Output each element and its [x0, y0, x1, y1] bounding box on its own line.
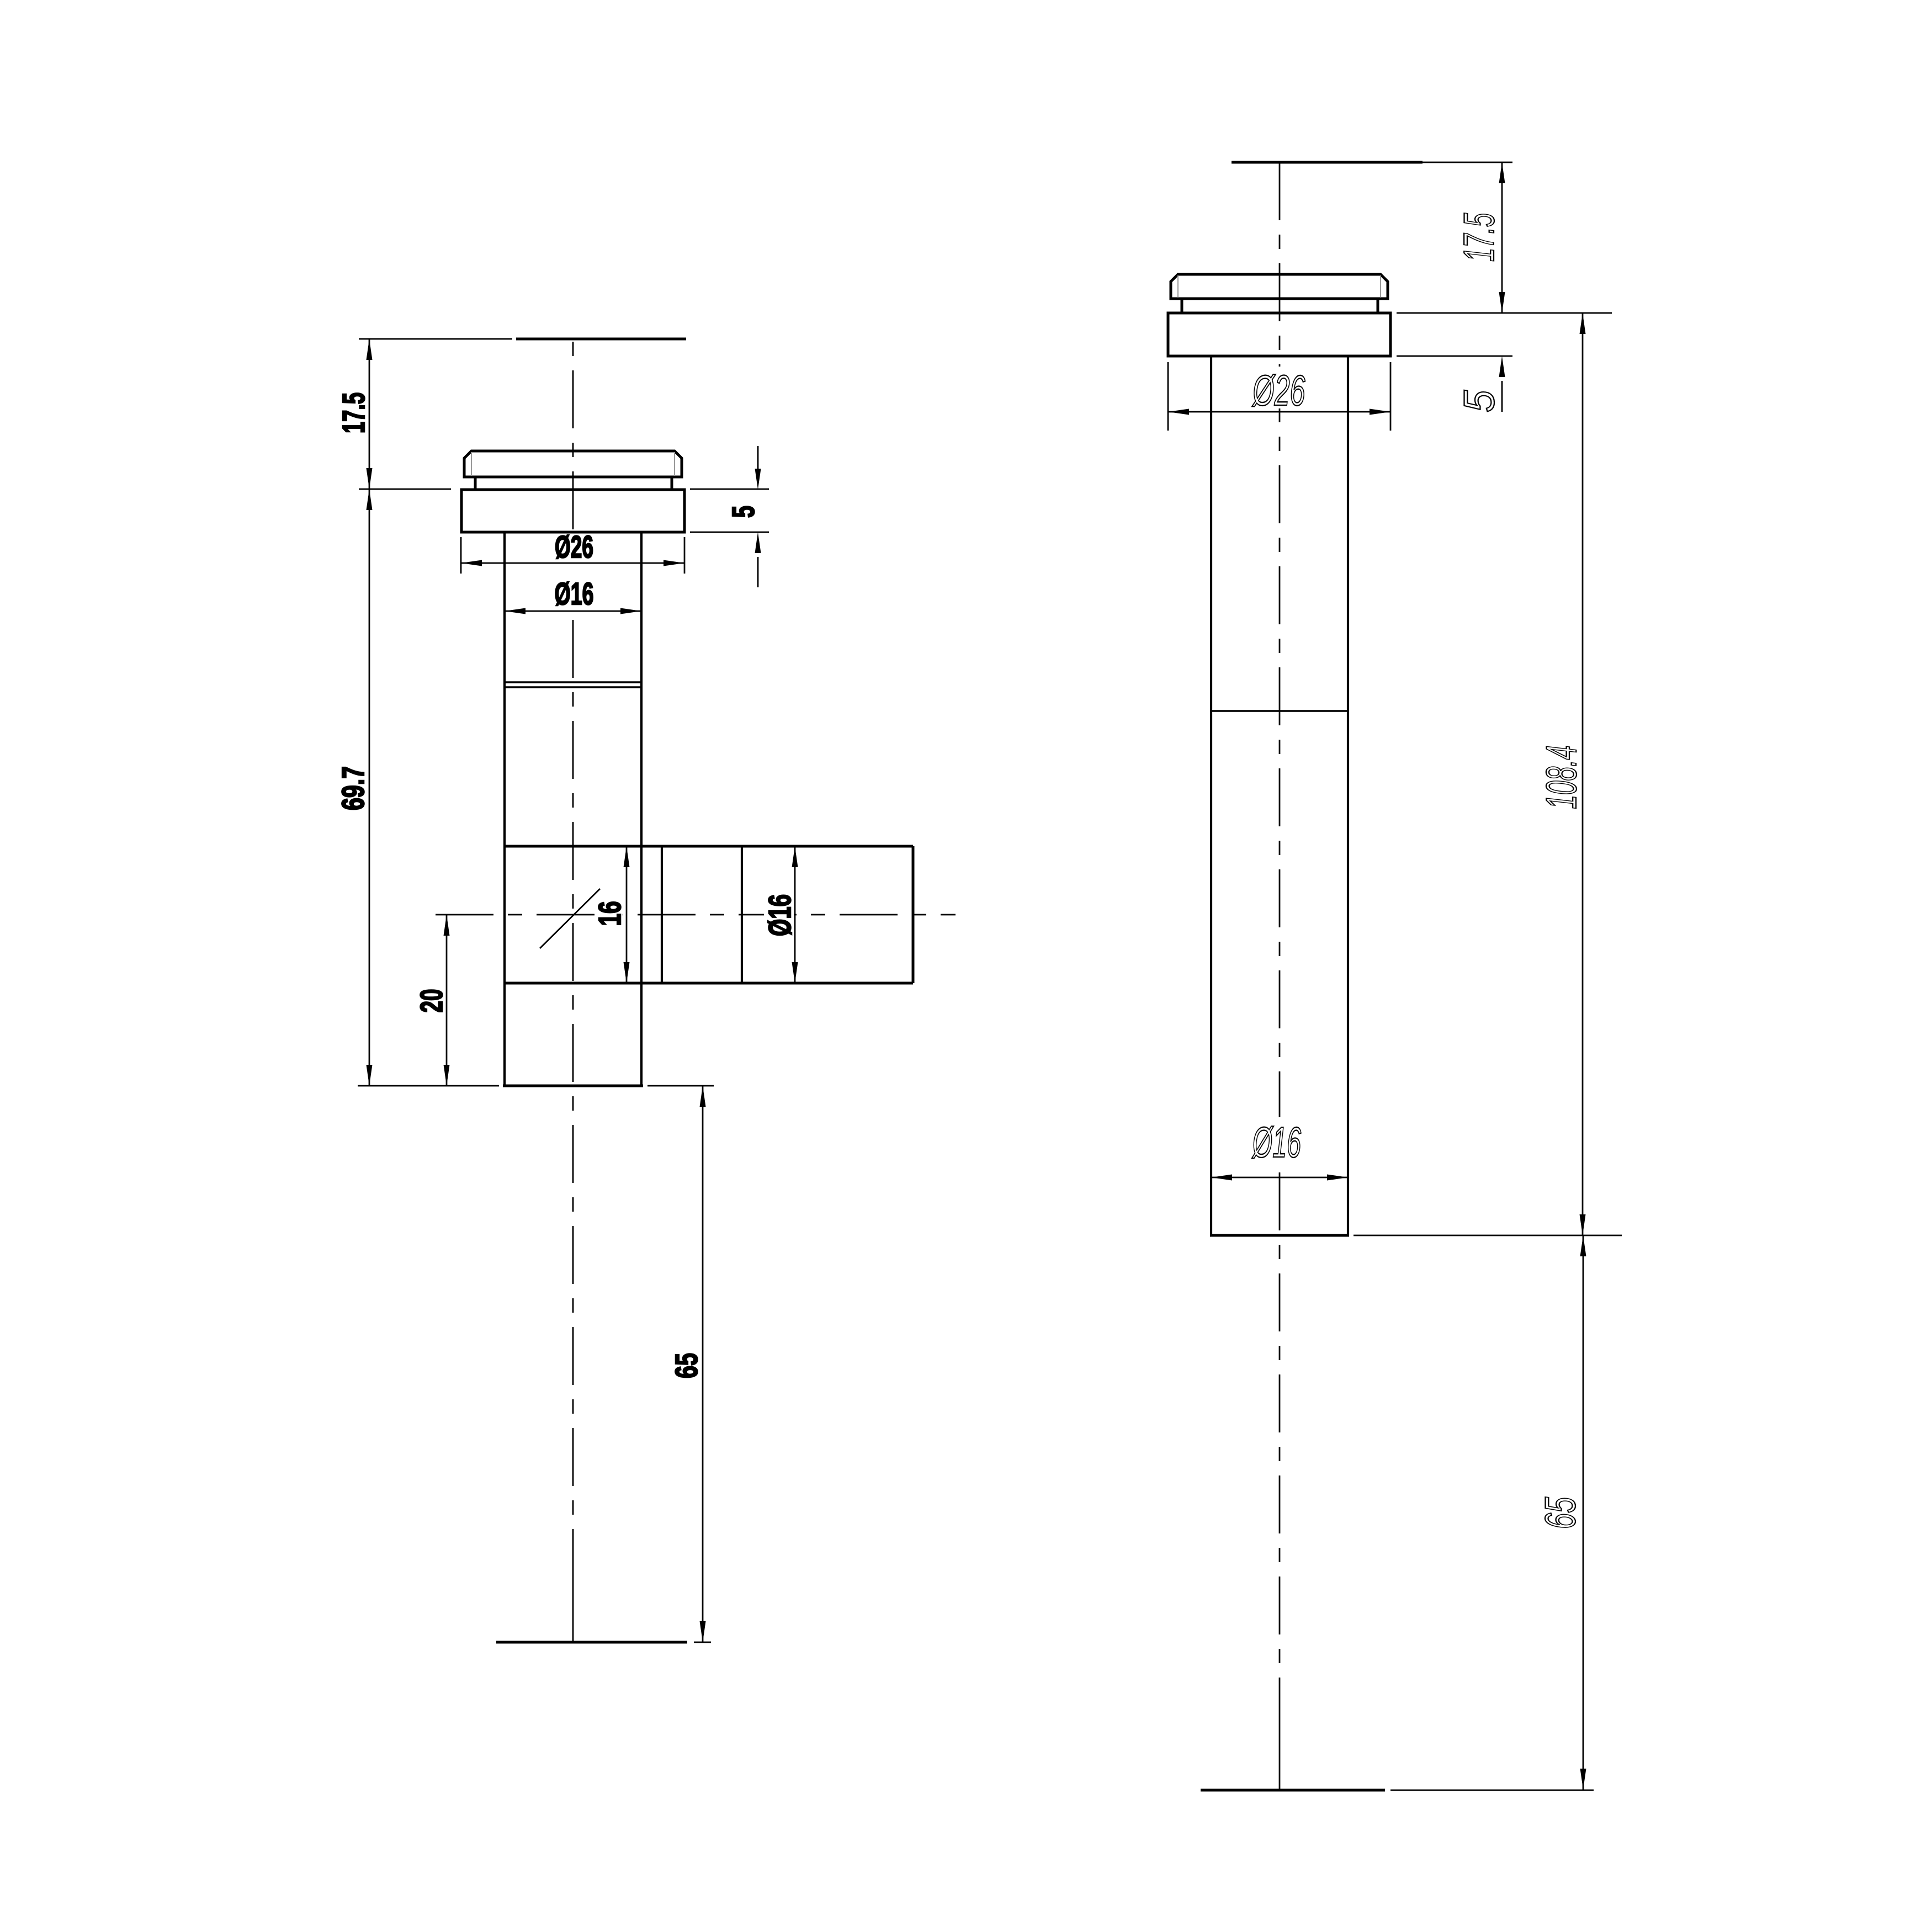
- svg-text:69.7: 69.7: [336, 766, 371, 810]
- svg-text:65: 65: [1536, 1497, 1584, 1529]
- svg-text:108.4: 108.4: [1537, 746, 1585, 809]
- svg-text:5: 5: [1455, 390, 1503, 412]
- svg-text:65: 65: [669, 1353, 704, 1378]
- svg-text:16: 16: [592, 901, 628, 926]
- svg-text:20: 20: [414, 989, 449, 1013]
- svg-text:17.5: 17.5: [336, 392, 371, 433]
- svg-text:Ø26: Ø26: [1252, 366, 1305, 415]
- svg-text:Ø16: Ø16: [1251, 1118, 1301, 1166]
- svg-text:5: 5: [726, 506, 761, 518]
- svg-text:Ø26: Ø26: [555, 529, 593, 565]
- svg-text:Ø16: Ø16: [762, 894, 798, 936]
- svg-text:Ø16: Ø16: [555, 576, 594, 612]
- svg-text:17.5: 17.5: [1455, 213, 1503, 262]
